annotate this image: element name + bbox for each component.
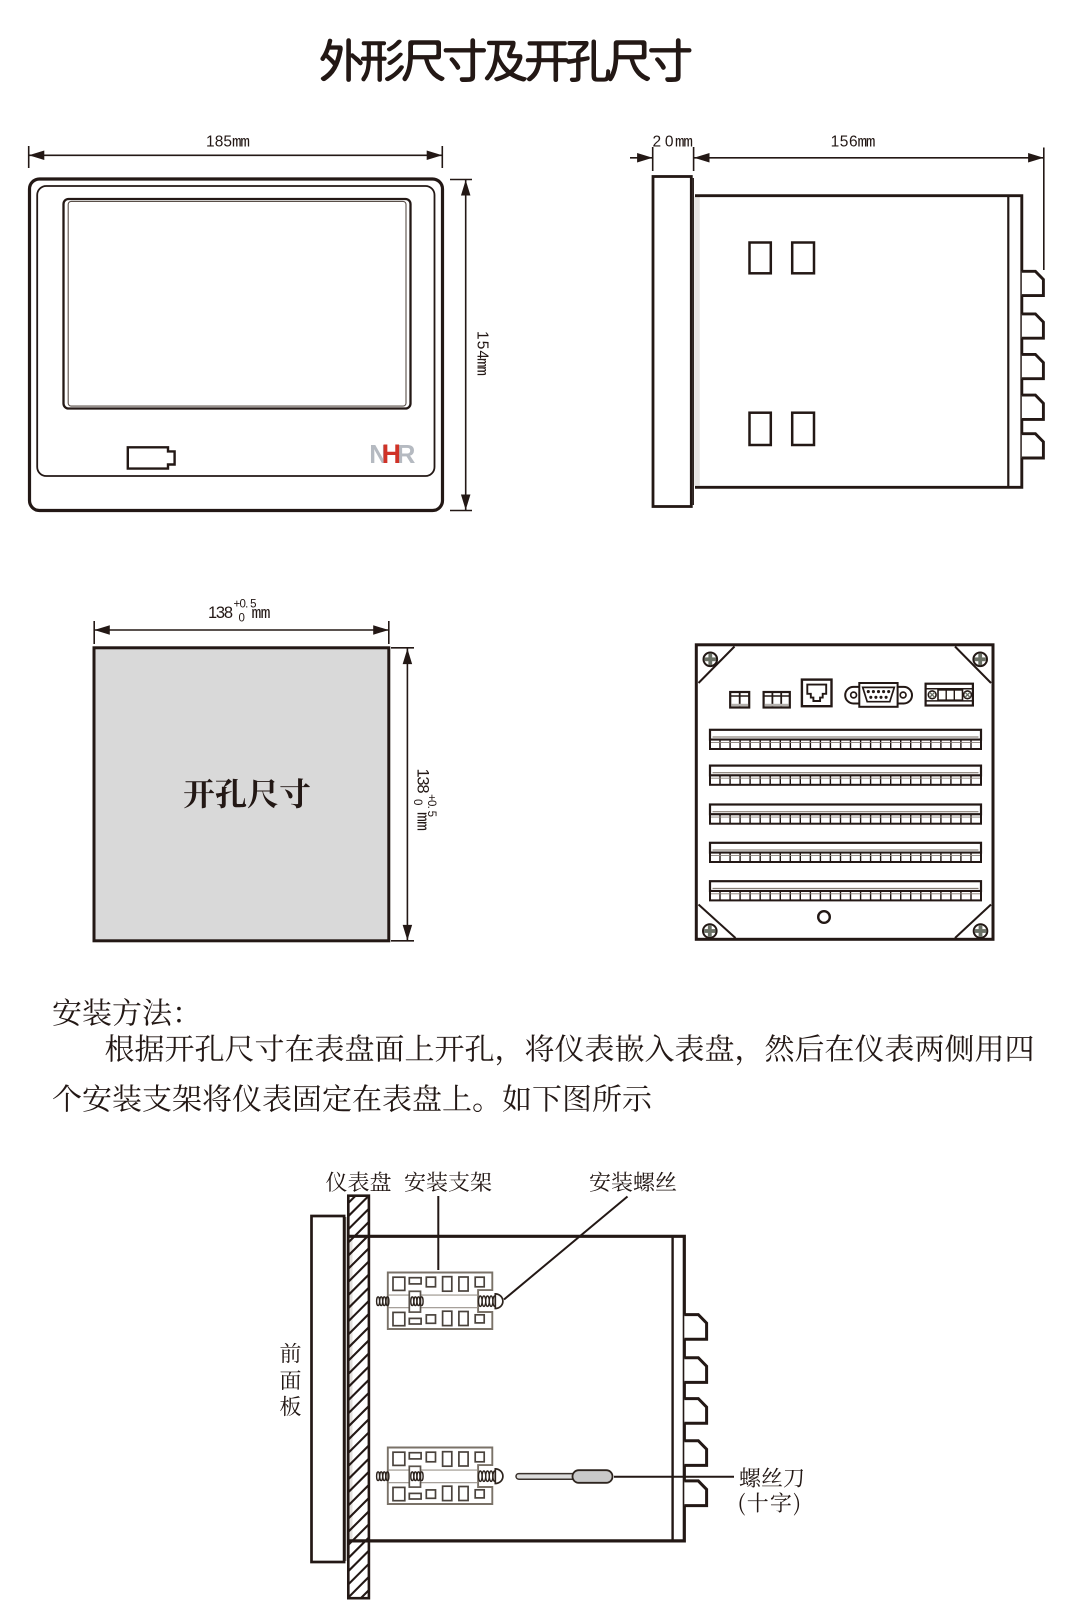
svg-text:0: 0 — [239, 613, 245, 625]
svg-text:mm: mm — [232, 133, 250, 151]
svg-text:185: 185 — [206, 133, 232, 150]
svg-text:138: 138 — [208, 604, 233, 622]
svg-text:0: 0 — [411, 799, 423, 805]
svg-text:H: H — [382, 439, 401, 469]
svg-text:mm: mm — [473, 358, 491, 376]
svg-text:mm: mm — [675, 133, 693, 151]
svg-text:138: 138 — [414, 769, 432, 794]
svg-text:156: 156 — [831, 133, 858, 150]
svg-text:mm: mm — [858, 133, 876, 151]
svg-text:mm: mm — [252, 604, 271, 623]
svg-text:154: 154 — [474, 331, 491, 359]
svg-text:mm: mm — [413, 812, 432, 831]
